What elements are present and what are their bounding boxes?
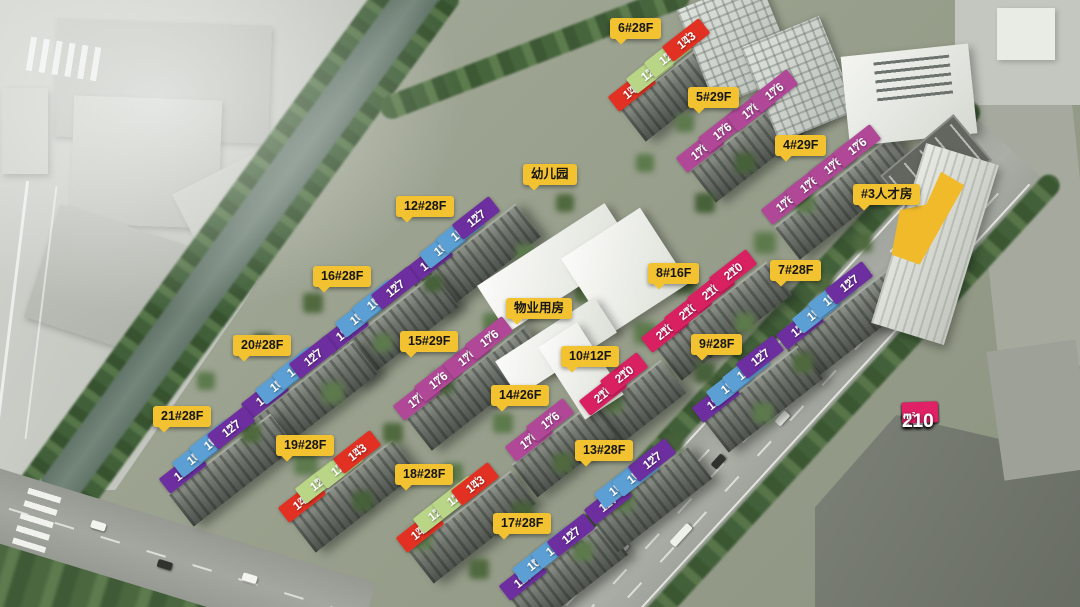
building-label-talent: #3人才房: [853, 184, 920, 205]
rooftop-panels: [873, 55, 953, 105]
building-label-21: 21#28F: [153, 406, 211, 427]
building-label-19: 19#28F: [276, 435, 334, 456]
building-label-property: 物业用房: [506, 298, 572, 319]
car: [241, 572, 258, 584]
trees: [0, 0, 2, 2]
building-label-7: 7#28F: [770, 260, 821, 281]
building-label-15: 15#29F: [400, 331, 458, 352]
building-label-17: 17#28F: [493, 513, 551, 534]
building-label-13: 13#28F: [575, 440, 633, 461]
building-label-4: 4#29F: [775, 135, 826, 156]
building-label-12: 12#28F: [396, 196, 454, 217]
building-label-10: 10#12F: [561, 346, 619, 367]
building-label-6: 6#28F: [610, 18, 661, 39]
offsite-building: [2, 88, 48, 174]
site-plan-scene: 143m²127m²127m²143m²176m²176m²176m²176m²…: [0, 0, 1080, 607]
building-label-8: 8#16F: [648, 263, 699, 284]
building-label-20: 20#28F: [233, 335, 291, 356]
building-label-18: 18#28F: [395, 464, 453, 485]
car: [90, 520, 107, 532]
car: [156, 559, 173, 571]
offsite-building: [997, 8, 1055, 60]
building-label-16: 16#28F: [313, 266, 371, 287]
building-label-14: 14#26F: [491, 385, 549, 406]
bus: [669, 523, 692, 548]
building-label-9: 9#28F: [691, 334, 742, 355]
offsite-area: [955, 0, 1080, 105]
building-label-5: 5#29F: [688, 87, 739, 108]
building-label-kindergarten: 幼儿园: [523, 164, 577, 185]
